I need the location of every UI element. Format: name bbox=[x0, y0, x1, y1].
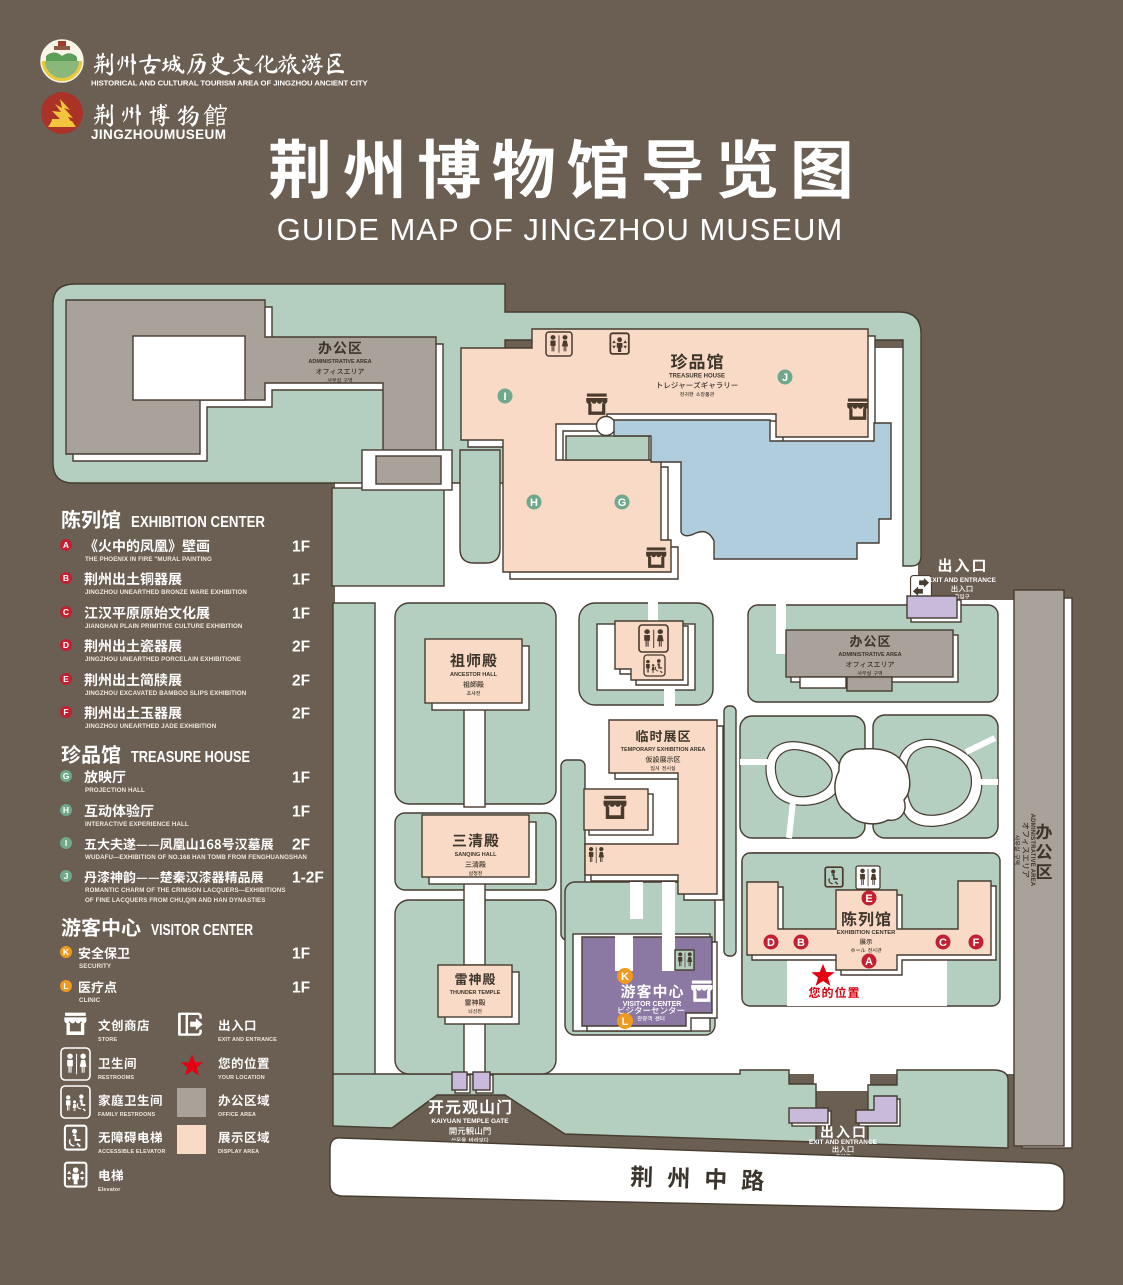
svg-text:I: I bbox=[503, 391, 506, 403]
svg-text:TREASURE HOUSE: TREASURE HOUSE bbox=[131, 749, 250, 766]
svg-text:OFFICE AREA: OFFICE AREA bbox=[218, 1112, 256, 1118]
svg-text:1-2F: 1-2F bbox=[292, 870, 324, 887]
svg-text:EXHIBITION CENTER: EXHIBITION CENTER bbox=[837, 930, 896, 936]
svg-text:1F: 1F bbox=[292, 980, 310, 997]
svg-text:ANCESTOR HALL: ANCESTOR HALL bbox=[450, 672, 498, 678]
svg-text:DISPLAY AREA: DISPLAY AREA bbox=[218, 1149, 259, 1155]
svg-text:D: D bbox=[767, 937, 775, 949]
svg-text:KAIYUAN TEMPLE GATE: KAIYUAN TEMPLE GATE bbox=[431, 1118, 509, 1125]
svg-text:A: A bbox=[63, 540, 69, 550]
svg-text:1F: 1F bbox=[292, 539, 310, 556]
svg-text:K: K bbox=[63, 947, 70, 957]
svg-text:2F: 2F bbox=[292, 673, 310, 690]
svg-text:ADMINISTRATIVE AREA: ADMINISTRATIVE AREA bbox=[838, 652, 901, 658]
svg-text:L: L bbox=[63, 981, 68, 991]
svg-text:I: I bbox=[65, 838, 67, 848]
svg-text:JINGZHOU EXCAVATED BAMBOO SLIP: JINGZHOU EXCAVATED BAMBOO SLIPS EXHIBITI… bbox=[85, 690, 247, 697]
svg-text:B: B bbox=[63, 573, 69, 583]
svg-text:G: G bbox=[63, 771, 70, 781]
svg-text:A: A bbox=[865, 956, 873, 968]
svg-text:PROJECTION HALL: PROJECTION HALL bbox=[85, 787, 145, 794]
svg-text:ADMINISTRATIVE AREA: ADMINISTRATIVE AREA bbox=[308, 359, 371, 365]
svg-text:TEMPORARY EXHIBITION AREA: TEMPORARY EXHIBITION AREA bbox=[621, 747, 706, 753]
svg-text:THE PHOENIX IN FIRE "MURAL PAI: THE PHOENIX IN FIRE "MURAL PAINTING bbox=[85, 556, 212, 563]
svg-text:E: E bbox=[865, 893, 872, 905]
svg-text:CLINIC: CLINIC bbox=[79, 997, 101, 1004]
svg-text:K: K bbox=[621, 971, 629, 983]
svg-text:F: F bbox=[63, 707, 68, 717]
svg-text:F: F bbox=[973, 937, 980, 949]
svg-text:RESTROOMS: RESTROOMS bbox=[98, 1075, 134, 1081]
svg-text:2F: 2F bbox=[292, 706, 310, 723]
svg-text:SECURITY: SECURITY bbox=[79, 963, 112, 970]
svg-text:ROMANTIC CHARM OF THE CRIMSON: ROMANTIC CHARM OF THE CRIMSON LACQUERS—E… bbox=[85, 887, 286, 894]
svg-text:YOUR LOCATION: YOUR LOCATION bbox=[218, 1075, 265, 1081]
svg-text:ACCESSIBLE ELEVATOR: ACCESSIBLE ELEVATOR bbox=[98, 1149, 166, 1155]
svg-text:GUIDE MAP OF JINGZHOU MUSEUM: GUIDE MAP OF JINGZHOU MUSEUM bbox=[277, 212, 844, 247]
svg-text:HISTORICAL AND CULTURAL TOURIS: HISTORICAL AND CULTURAL TOURISM AREA OF … bbox=[91, 79, 368, 88]
svg-text:Elevator: Elevator bbox=[98, 1187, 121, 1193]
svg-text:JIANGHAN PLAIN PRIMITIVE CULTU: JIANGHAN PLAIN PRIMITIVE CULTURE EXHIBIT… bbox=[85, 623, 243, 630]
svg-text:C: C bbox=[939, 937, 947, 949]
svg-text:EXIT AND ENTRANCE: EXIT AND ENTRANCE bbox=[809, 1139, 878, 1146]
svg-text:2F: 2F bbox=[292, 639, 310, 656]
svg-text:1F: 1F bbox=[292, 770, 310, 787]
svg-text:B: B bbox=[797, 937, 805, 949]
svg-text:THUNDER TEMPLE: THUNDER TEMPLE bbox=[450, 990, 501, 996]
svg-text:H: H bbox=[530, 497, 538, 509]
svg-text:WUDAFU—EXHIBITION OF NO.168 HA: WUDAFU—EXHIBITION OF NO.168 HAN TOMB FRO… bbox=[85, 854, 307, 861]
svg-text:SANQING HALL: SANQING HALL bbox=[455, 852, 498, 858]
svg-text:EXIT AND ENTRANCE: EXIT AND ENTRANCE bbox=[218, 1037, 277, 1043]
svg-text:JINGZHOUMUSEUM: JINGZHOUMUSEUM bbox=[91, 127, 226, 142]
svg-text:1F: 1F bbox=[292, 606, 310, 623]
svg-text:1F: 1F bbox=[292, 804, 310, 821]
svg-text:J: J bbox=[782, 372, 788, 384]
svg-text:JINGZHOU UNEARTHED PORCELAIN E: JINGZHOU UNEARTHED PORCELAIN EXHIBITIONE bbox=[85, 656, 241, 663]
svg-text:JINGZHOU UNEARTHED JADE EXHIBI: JINGZHOU UNEARTHED JADE EXHIBITION bbox=[85, 723, 217, 730]
svg-text:E: E bbox=[63, 674, 69, 684]
svg-text:FAMILY RESTROONS: FAMILY RESTROONS bbox=[98, 1112, 155, 1118]
svg-text:VISITOR CENTER: VISITOR CENTER bbox=[151, 922, 253, 939]
svg-text:G: G bbox=[618, 497, 627, 509]
svg-text:JINGZHOU UNEARTHED BRONZE WARE: JINGZHOU UNEARTHED BRONZE WARE EXHIBITIO… bbox=[85, 589, 247, 596]
svg-text:TREASURE HOUSE: TREASURE HOUSE bbox=[669, 374, 725, 380]
svg-text:1F: 1F bbox=[292, 572, 310, 589]
svg-text:EXIT AND ENTRANCE: EXIT AND ENTRANCE bbox=[928, 577, 997, 584]
svg-text:J: J bbox=[64, 871, 69, 881]
svg-text:D: D bbox=[63, 640, 69, 650]
svg-text:L: L bbox=[622, 1016, 629, 1028]
svg-text:EXHIBITION CENTER: EXHIBITION CENTER bbox=[131, 514, 265, 531]
svg-text:1F: 1F bbox=[292, 946, 310, 963]
svg-text:C: C bbox=[63, 607, 69, 617]
svg-text:OF FINE LACQUERS FROM CHU,QIN: OF FINE LACQUERS FROM CHU,QIN AND HAN DY… bbox=[85, 897, 265, 904]
svg-text:STORE: STORE bbox=[98, 1037, 117, 1043]
svg-text:2F: 2F bbox=[292, 837, 310, 854]
svg-text:ADMINISTRATIVE AREA: ADMINISTRATIVE AREA bbox=[1029, 814, 1035, 887]
svg-text:H: H bbox=[63, 805, 69, 815]
svg-text:INTERACTIVE EXPERIENCE HALL: INTERACTIVE EXPERIENCE HALL bbox=[85, 821, 189, 828]
